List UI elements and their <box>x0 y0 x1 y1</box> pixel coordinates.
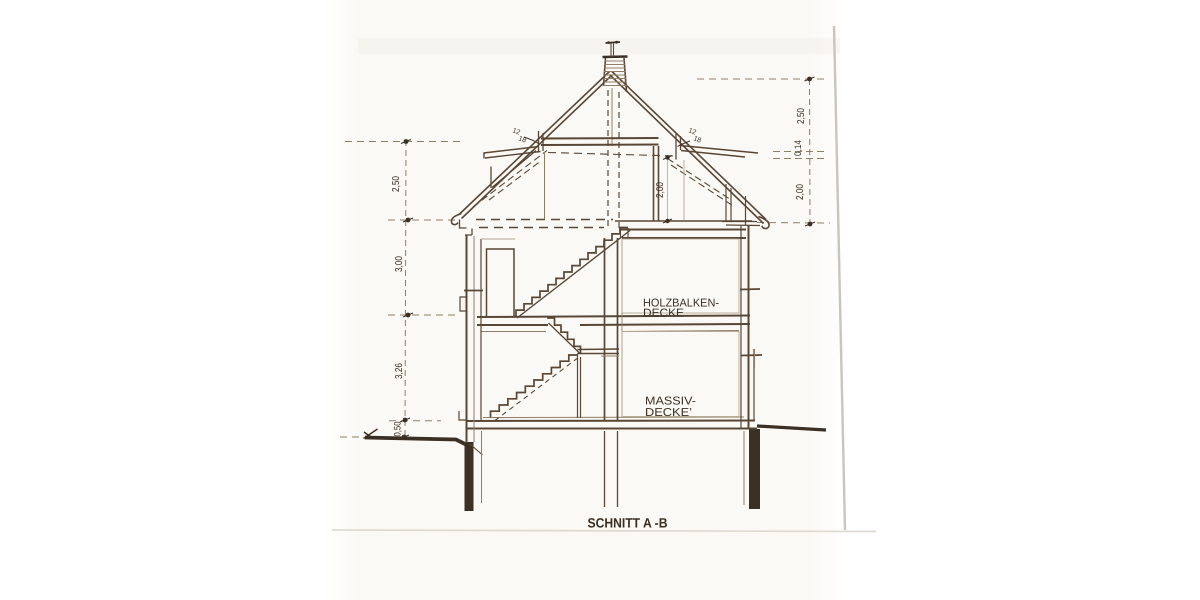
svg-text:0,50: 0,50 <box>393 422 404 437</box>
svg-text:3,00: 3,00 <box>394 256 405 272</box>
svg-text:2,50: 2,50 <box>796 108 807 124</box>
svg-text:MASSIV-: MASSIV- <box>645 396 696 408</box>
svg-text:2,50: 2,50 <box>391 176 402 192</box>
svg-text:3,26: 3,26 <box>394 363 405 379</box>
svg-text:DECKE’: DECKE’ <box>645 407 692 419</box>
svg-text:DECKE: DECKE <box>643 308 684 320</box>
svg-text:SCHNITT A -B: SCHNITT A -B <box>588 516 668 531</box>
svg-text:0,14: 0,14 <box>793 140 804 156</box>
svg-text:2,00: 2,00 <box>795 184 806 200</box>
svg-text:2,00: 2,00 <box>655 182 666 198</box>
